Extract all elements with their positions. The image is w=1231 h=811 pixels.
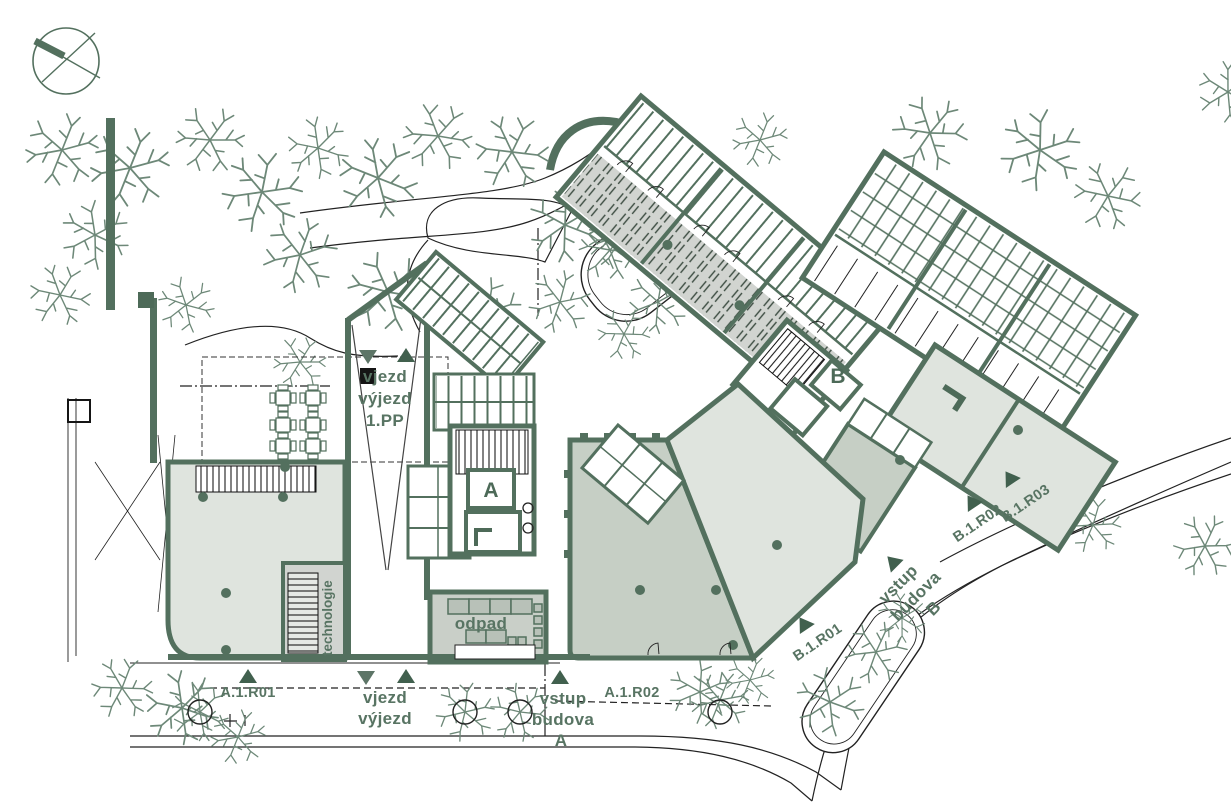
storage-row <box>434 374 534 430</box>
core-b-label: B <box>830 365 845 388</box>
entrance-a-line2: budova <box>532 710 594 729</box>
ramp-1pp <box>345 263 430 656</box>
unit-b1r02-label: B.1.R02 <box>950 502 1005 546</box>
column <box>198 492 208 502</box>
column <box>1013 425 1023 435</box>
ramp-up-arrow-icon <box>397 348 415 362</box>
tree-icon <box>1070 158 1145 234</box>
street-tree-pit <box>708 700 732 724</box>
tree-icon <box>270 333 329 391</box>
column <box>772 540 782 550</box>
entrance-a-arrow-icon <box>551 670 569 684</box>
brace-lines <box>95 435 175 612</box>
column <box>278 492 288 502</box>
column <box>895 455 905 465</box>
tree-icon <box>1163 504 1231 588</box>
terrace-tables <box>270 385 326 459</box>
wall-segment <box>106 118 115 310</box>
entrance-a-line3: A <box>555 731 568 750</box>
table-icon <box>270 385 296 411</box>
column <box>711 585 721 595</box>
column <box>280 462 290 472</box>
tree-icon <box>84 650 160 727</box>
planter-open <box>68 400 90 422</box>
tree-icon <box>426 672 505 751</box>
stair-a1r01 <box>196 466 316 492</box>
tree-icon <box>26 260 95 329</box>
tree-icon <box>469 108 556 196</box>
tree-icon <box>150 268 223 341</box>
unit-arrow-icon <box>239 669 257 683</box>
ramp-main-line1: vjezd <box>363 367 407 386</box>
column <box>221 588 231 598</box>
tree-icon <box>277 107 358 188</box>
tree-icon <box>340 139 417 217</box>
stair-technologie <box>288 573 318 653</box>
wall-segment <box>150 298 157 463</box>
tree-icon <box>210 139 315 245</box>
ramp-street-line1: vjezd <box>363 688 407 707</box>
table-icon <box>300 433 326 459</box>
bed-west <box>427 198 572 262</box>
unit-a1r02-label: A.1.R02 <box>604 685 659 701</box>
table-icon <box>270 433 296 459</box>
tree-icon <box>26 114 98 185</box>
column <box>635 585 645 595</box>
entry-mat <box>455 645 535 659</box>
tree-icon <box>733 113 787 166</box>
stair-a <box>456 430 528 474</box>
tree-icon <box>658 650 742 734</box>
ramp-down-arrow-icon <box>357 671 375 685</box>
tree-icon <box>396 95 480 179</box>
site-plan: vjezd výjezd 1.PP A B odpad technologie … <box>0 0 1231 811</box>
north-arrow-icon <box>33 28 100 94</box>
unit-b1r01-label: B.1.R01 <box>790 621 845 665</box>
ramp-up-arrow-icon <box>397 669 415 683</box>
tree-icon <box>252 206 349 304</box>
tree-icon <box>726 656 774 703</box>
entrance-b-line3: B <box>922 597 944 619</box>
column <box>221 645 231 655</box>
ramp-main-line3: 1.PP <box>366 411 404 430</box>
tree-icon <box>49 189 141 281</box>
boundary-left <box>68 398 76 662</box>
planter-green <box>138 292 154 308</box>
building-a-wing <box>396 252 543 389</box>
column <box>728 640 738 650</box>
ramp-street-line2: výjezd <box>358 709 412 728</box>
odpad-label: odpad <box>455 614 508 633</box>
core-a-label: A <box>483 479 498 502</box>
street-edge-2 <box>130 747 812 801</box>
ramp-main-line2: výjezd <box>358 389 412 408</box>
unit-a1r01-label: A.1.R01 <box>220 685 275 701</box>
entrance-a-line1: vstup <box>540 689 587 708</box>
tree-icon <box>1194 57 1231 126</box>
survey-cross <box>224 714 245 727</box>
retail-central <box>564 384 863 658</box>
room-technologie <box>283 563 345 660</box>
technologie-label: technologie <box>320 580 335 656</box>
tree-icon <box>91 129 169 206</box>
table-icon <box>300 385 326 411</box>
tree-icon <box>133 659 231 756</box>
